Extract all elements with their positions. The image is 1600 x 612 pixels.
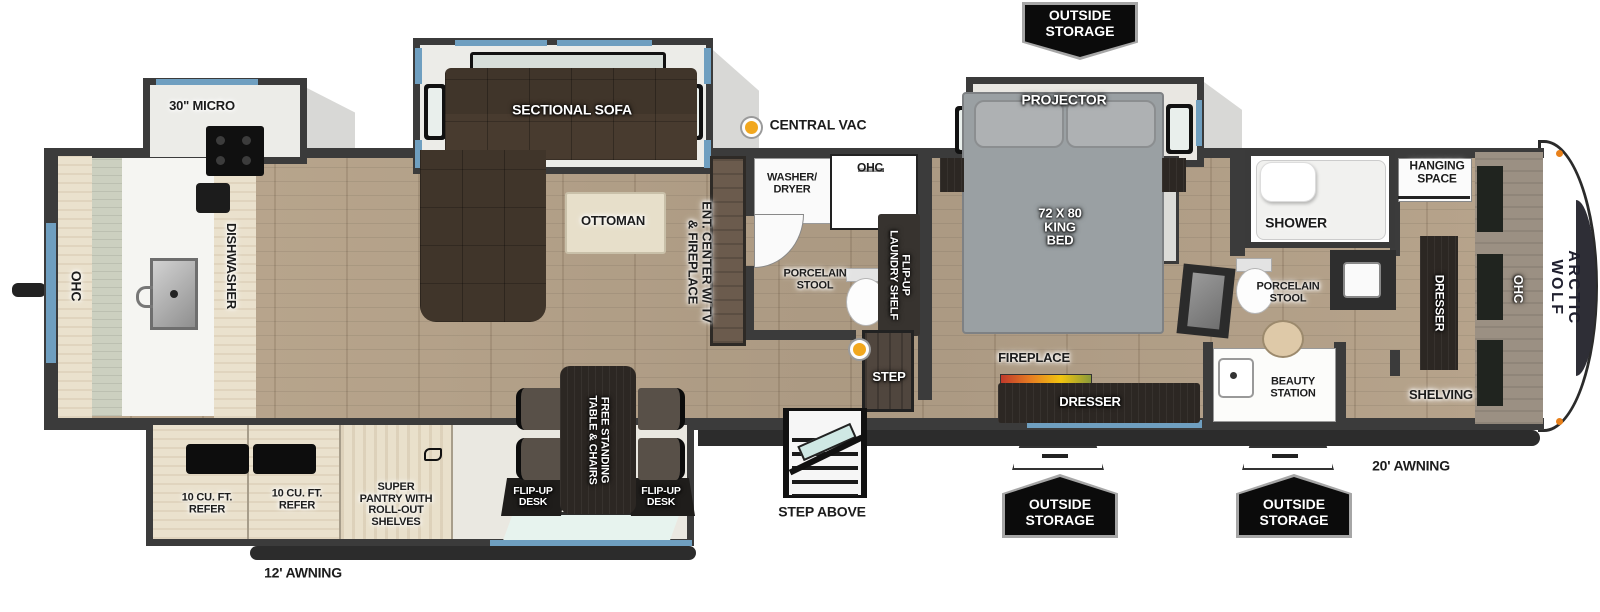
wall <box>305 148 415 158</box>
label-king-bed: 72 X 80 KING BED <box>1038 207 1081 248</box>
label-beauty-station: BEAUTY STATION <box>1270 376 1315 399</box>
ohc-cabinet <box>1477 166 1503 232</box>
beauty-stool <box>1262 320 1304 358</box>
label-dishwasher: DISHWASHER <box>224 223 238 309</box>
chair <box>516 388 563 430</box>
refrigerator-top <box>253 444 316 474</box>
label-step-above: STEP ABOVE <box>778 505 865 520</box>
outside-storage-badge: OUTSIDE STORAGE <box>1022 2 1138 60</box>
wall <box>692 418 784 430</box>
closet-rod <box>1398 196 1470 199</box>
bath-sink <box>1343 262 1381 298</box>
label-kitchen-ohc: OHC <box>69 271 84 302</box>
central-vac-dot <box>742 118 761 137</box>
label-closet-dresser: DRESSER <box>1433 275 1446 332</box>
window <box>1166 104 1193 154</box>
label-flip-up-desk-left: FLIP-UP DESK <box>513 486 552 508</box>
label-fireplace: FIREPLACE <box>998 351 1070 365</box>
label-sectional-sofa: SECTIONAL SOFA <box>512 103 632 118</box>
outside-storage-badge: OUTSIDE STORAGE <box>1002 474 1118 538</box>
floorplan: OUTSIDE STORAGE OUTSIDE STORAGE OUTSIDE … <box>0 0 1600 612</box>
window-strip <box>1196 100 1202 146</box>
range-cooktop <box>206 126 264 176</box>
label-step: STEP <box>872 370 905 384</box>
chair <box>638 388 685 430</box>
label-refer-2: 10 CU. FT. REFER <box>272 488 323 511</box>
outside-storage-label: OUTSIDE STORAGE <box>1236 474 1352 538</box>
nightstand <box>1162 158 1186 192</box>
sectional-sofa-chaise <box>420 150 546 322</box>
dinette-skirt-rail <box>250 546 696 560</box>
range-burner <box>242 136 251 145</box>
label-mid-porcelain-stool: PORCELAIN STOOL <box>784 268 847 291</box>
label-awning-front: 20' AWNING <box>1372 459 1450 474</box>
label-table-chairs: FREE STANDING TABLE & CHAIRS <box>586 395 609 484</box>
refrigerator-top <box>186 444 249 474</box>
label-central-vac: CENTRAL VAC <box>770 118 867 133</box>
entertainment-center <box>710 156 746 346</box>
storage-door-handle <box>1272 454 1298 458</box>
label-closet-ohc: OHC <box>1511 275 1525 303</box>
label-hanging-space: HANGING SPACE <box>1409 159 1464 184</box>
pantry-handle <box>424 448 442 461</box>
window-strip <box>557 40 652 46</box>
label-super-pantry: SUPER PANTRY WITH ROLL-OUT SHELVES <box>360 482 433 528</box>
storage-door <box>1012 446 1104 470</box>
outside-storage-badge: OUTSIDE STORAGE <box>1236 474 1352 538</box>
rear-bumper <box>12 283 46 297</box>
window-strip <box>415 48 422 84</box>
chair <box>516 438 563 480</box>
mirror-glass <box>1187 272 1224 329</box>
label-flip-up-desk-right: FLIP-UP DESK <box>641 486 680 508</box>
kitchen-counter <box>92 158 122 416</box>
range-burner <box>216 136 225 145</box>
ohc-cabinet <box>1477 254 1503 320</box>
window <box>424 84 446 140</box>
wall <box>1230 156 1245 256</box>
label-bath-ohc: OHC <box>857 162 883 175</box>
marker-light <box>1556 150 1563 157</box>
outside-storage-label: OUTSIDE STORAGE <box>1022 2 1138 60</box>
window-strip <box>156 79 258 85</box>
brand-logo: ARCTIC WOLF <box>1547 250 1581 325</box>
beauty-sink-drain <box>1230 372 1237 379</box>
label-micro: 30" MICRO <box>169 99 235 113</box>
wall <box>1203 342 1213 420</box>
label-refer-1: 10 CU. FT. REFER <box>182 492 233 515</box>
label-bedroom-dresser: DRESSER <box>1059 395 1120 409</box>
sink-drain <box>170 290 178 298</box>
wall <box>918 156 932 400</box>
label-ottoman: OTTOMAN <box>581 214 645 228</box>
storage-door-handle <box>1042 454 1068 458</box>
marker-light <box>1556 418 1563 425</box>
range-burner <box>216 156 225 165</box>
refrigerator <box>249 425 341 539</box>
storage-door <box>1242 446 1334 470</box>
chair <box>638 438 685 480</box>
ohc-cabinet <box>1477 340 1503 406</box>
outside-storage-label: OUTSIDE STORAGE <box>1002 474 1118 538</box>
coffee-maker <box>196 183 230 213</box>
label-projector: PROJECTOR <box>1021 93 1106 108</box>
window-strip <box>704 48 711 84</box>
label-front-porcelain-stool: PORCELAIN STOOL <box>1257 281 1320 304</box>
wall <box>58 418 148 430</box>
wall <box>744 330 856 340</box>
beauty-sink <box>1218 358 1254 398</box>
faucet <box>136 286 153 308</box>
central-vac-outlet-dot <box>850 340 869 359</box>
rear-window <box>46 223 56 363</box>
window-strip <box>455 40 547 46</box>
nightstand <box>940 158 964 192</box>
label-shelving: SHELVING <box>1409 388 1473 402</box>
label-washer-dryer: WASHER/ DRYER <box>767 172 817 195</box>
refrigerator <box>153 425 249 539</box>
label-laundry-shelf: FLIP-UP LAUNDRY SHELF <box>887 230 910 320</box>
window-strip <box>490 540 692 546</box>
label-ent-center: ENT. CENTER W/ TV & FIREPLACE <box>686 201 713 323</box>
label-shower: SHOWER <box>1265 216 1327 231</box>
range-burner <box>242 156 251 165</box>
wall <box>1390 350 1400 376</box>
shower-seat <box>1260 162 1316 202</box>
label-awning-rear: 12' AWNING <box>264 566 342 581</box>
